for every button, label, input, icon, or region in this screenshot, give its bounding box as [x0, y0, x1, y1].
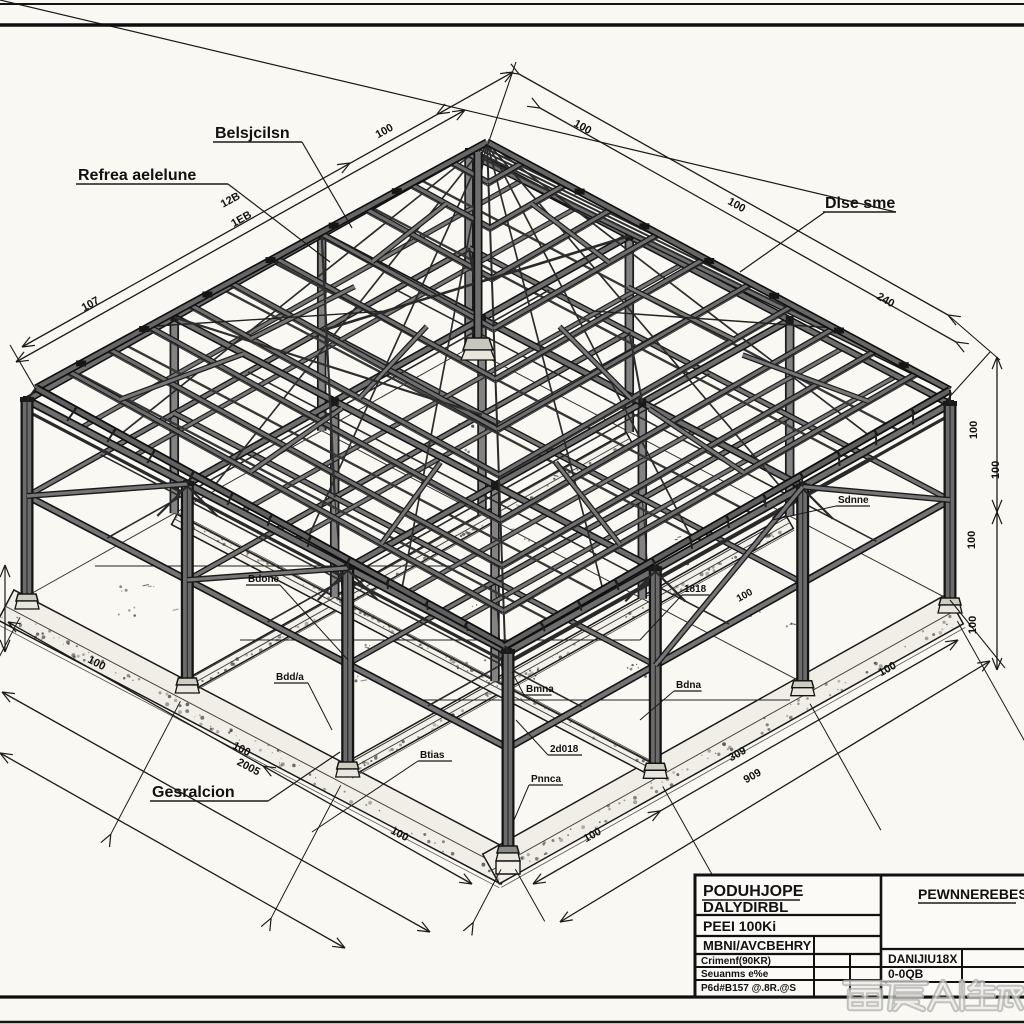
svg-text:Pnnca: Pnnca: [531, 774, 561, 785]
svg-text:Bdna: Bdna: [676, 680, 701, 691]
svg-text:100: 100: [968, 421, 980, 439]
svg-text:PODUHJOPE: PODUHJOPE: [703, 883, 804, 900]
svg-text:100: 100: [967, 616, 979, 634]
svg-text:Bdone: Bdone: [248, 574, 280, 585]
svg-text:Bmna: Bmna: [526, 684, 554, 695]
svg-text:Btias: Btias: [420, 750, 445, 761]
svg-text:100: 100: [990, 461, 1002, 479]
svg-text:Refrea aelelune: Refrea aelelune: [78, 167, 196, 184]
svg-text:DANIJIU18X: DANIJIU18X: [888, 952, 957, 966]
svg-text:MBNI/AVCBEHRY: MBNI/AVCBEHRY: [703, 938, 812, 953]
svg-text:DALYDIRBL: DALYDIRBL: [703, 899, 788, 916]
svg-text:PEWNNEREBES: PEWNNEREBES: [918, 886, 1024, 902]
svg-text:100: 100: [966, 531, 978, 549]
svg-text:Belsjcilsn: Belsjcilsn: [215, 125, 290, 142]
svg-text:PEEI 100Ki: PEEI 100Ki: [703, 918, 776, 934]
svg-text:Gesralcion: Gesralcion: [152, 784, 235, 801]
svg-text:2d018: 2d018: [550, 744, 579, 755]
svg-text:Sdnne: Sdnne: [838, 495, 869, 506]
svg-text:Seuanms e%e: Seuanms e%e: [701, 969, 769, 980]
svg-text:Bdd/a: Bdd/a: [276, 672, 304, 683]
svg-text:P6d#B157 @.8R.@S: P6d#B157 @.8R.@S: [701, 983, 796, 994]
svg-text:1818: 1818: [684, 584, 707, 595]
svg-text:0-0QB: 0-0QB: [888, 967, 924, 981]
svg-text:Crimenf(90KR): Crimenf(90KR): [701, 956, 771, 967]
